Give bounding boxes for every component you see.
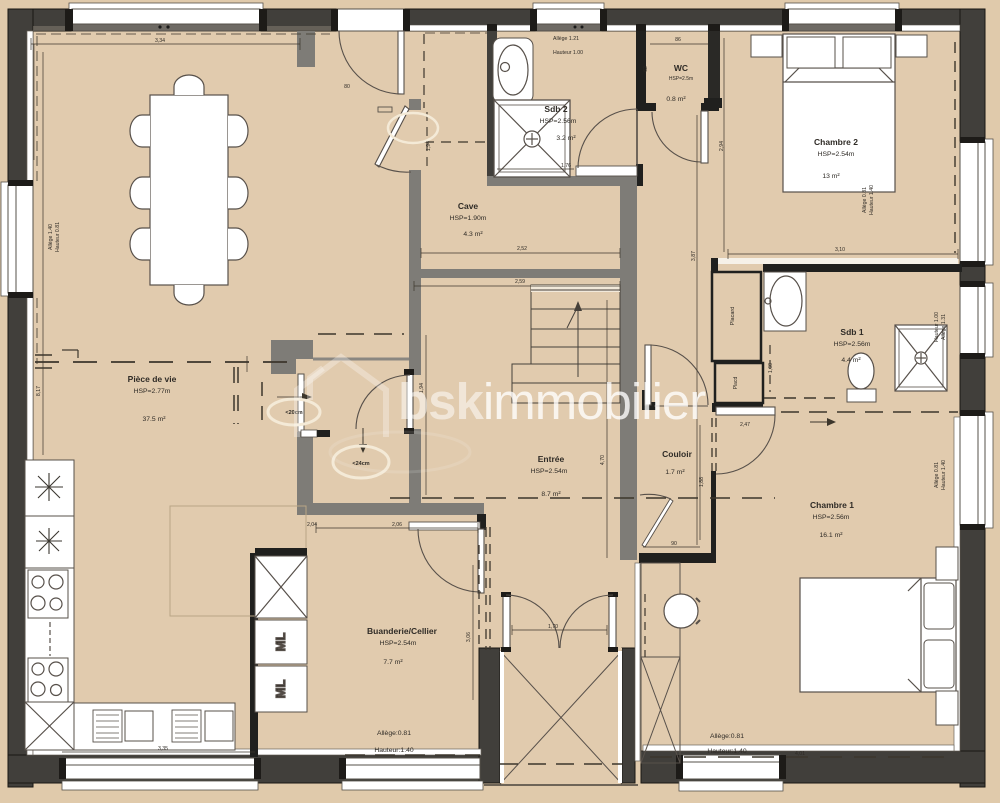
svg-text:HSP=2.54m: HSP=2.54m	[531, 468, 568, 475]
svg-text:2,47: 2,47	[740, 422, 750, 428]
svg-text:Hauteur:1.40: Hauteur:1.40	[707, 748, 747, 755]
svg-text:62: 62	[643, 66, 649, 72]
svg-text:Allège 1.40: Allège 1.40	[48, 224, 54, 250]
svg-text:13 m²: 13 m²	[822, 173, 840, 180]
svg-text:4,01: 4,01	[795, 751, 805, 757]
svg-text:1,70: 1,70	[548, 624, 558, 630]
svg-text:3,87: 3,87	[691, 251, 697, 261]
svg-text:Allège 1.21: Allège 1.21	[553, 36, 579, 42]
svg-text:Sdb 1: Sdb 1	[840, 327, 863, 337]
svg-text:Placd: Placd	[733, 377, 739, 390]
svg-text:Chambre 2: Chambre 2	[814, 137, 858, 147]
svg-text:2,04: 2,04	[307, 522, 317, 528]
svg-text:Allège 0.81: Allège 0.81	[934, 462, 940, 488]
svg-text:HSP=1.90m: HSP=1.90m	[450, 215, 487, 222]
svg-text:Placard: Placard	[730, 307, 736, 326]
svg-text:Hauteur 1.00: Hauteur 1.00	[553, 50, 583, 56]
svg-text:WC: WC	[674, 63, 688, 73]
svg-text:1,88: 1,88	[699, 477, 705, 487]
svg-text:Pièce de vie: Pièce de vie	[128, 374, 177, 384]
svg-text:HSP=2.54m: HSP=2.54m	[818, 151, 855, 158]
svg-text:HSP=2.56m: HSP=2.56m	[813, 514, 850, 521]
svg-text:90: 90	[671, 541, 677, 547]
svg-text:7.7 m²: 7.7 m²	[383, 659, 403, 666]
svg-text:Hauteur 0.81: Hauteur 0.81	[55, 222, 61, 252]
svg-text:Hauteur 1.00: Hauteur 1.00	[934, 312, 940, 342]
svg-text:3,10: 3,10	[835, 247, 845, 253]
svg-text:2,94: 2,94	[719, 141, 725, 151]
svg-text:ML: ML	[273, 680, 288, 699]
svg-text:2,06: 2,06	[392, 522, 402, 528]
svg-text:HSP=2.56m: HSP=2.56m	[834, 341, 871, 348]
svg-text:HSP=2.54m: HSP=2.54m	[380, 640, 417, 647]
svg-text:1,94: 1,94	[426, 141, 432, 151]
svg-text:HSP=2.56m: HSP=2.56m	[540, 118, 577, 125]
svg-text:80: 80	[344, 84, 350, 90]
svg-text:16.1 m²: 16.1 m²	[819, 532, 843, 539]
svg-text:Hauteur:1.40: Hauteur:1.40	[374, 747, 414, 754]
svg-text:Hauteur 1.40: Hauteur 1.40	[869, 185, 875, 215]
svg-text:4,70: 4,70	[600, 455, 606, 465]
svg-text:HSP=2.77m: HSP=2.77m	[134, 388, 171, 395]
svg-text:Allège 1.31: Allège 1.31	[941, 314, 947, 340]
svg-text:Allège:0.81: Allège:0.81	[710, 733, 744, 740]
svg-text:8,17: 8,17	[36, 386, 42, 396]
svg-text:3,35: 3,35	[158, 746, 168, 752]
svg-text:3,06: 3,06	[466, 632, 472, 642]
svg-text:4.4 m²: 4.4 m²	[841, 357, 861, 364]
svg-text:2,52: 2,52	[517, 246, 527, 252]
svg-text:HSP=2.5m: HSP=2.5m	[669, 76, 693, 82]
svg-text:1,60: 1,60	[768, 363, 774, 373]
svg-text:Allège 0.81: Allège 0.81	[862, 187, 868, 213]
svg-text:3.2 m²: 3.2 m²	[556, 135, 576, 142]
svg-text:Buanderie/Cellier: Buanderie/Cellier	[367, 626, 438, 636]
svg-text:4.3 m²: 4.3 m²	[463, 231, 483, 238]
svg-text:Couloir: Couloir	[662, 449, 692, 459]
svg-text:Cave: Cave	[458, 201, 479, 211]
svg-text:Chambre 1: Chambre 1	[810, 500, 854, 510]
svg-text:37.5 m²: 37.5 m²	[142, 416, 166, 423]
svg-text:ML: ML	[273, 633, 288, 652]
svg-text:1,76: 1,76	[561, 163, 571, 169]
svg-text:86: 86	[675, 37, 681, 43]
svg-text:0.8 m²: 0.8 m²	[666, 96, 686, 103]
svg-text:Sdb 2: Sdb 2	[544, 104, 567, 114]
svg-text:3,34: 3,34	[155, 38, 165, 44]
svg-text:8.7 m²: 8.7 m²	[541, 491, 561, 498]
svg-text:Allège:0.81: Allège:0.81	[377, 730, 411, 737]
svg-text:1.7 m²: 1.7 m²	[665, 469, 685, 476]
svg-text:bskimmobilier: bskimmobilier	[398, 373, 706, 430]
svg-text:Entrée: Entrée	[538, 454, 565, 464]
svg-text:Hauteur 1.40: Hauteur 1.40	[941, 460, 947, 490]
svg-text:2,59: 2,59	[515, 279, 525, 285]
